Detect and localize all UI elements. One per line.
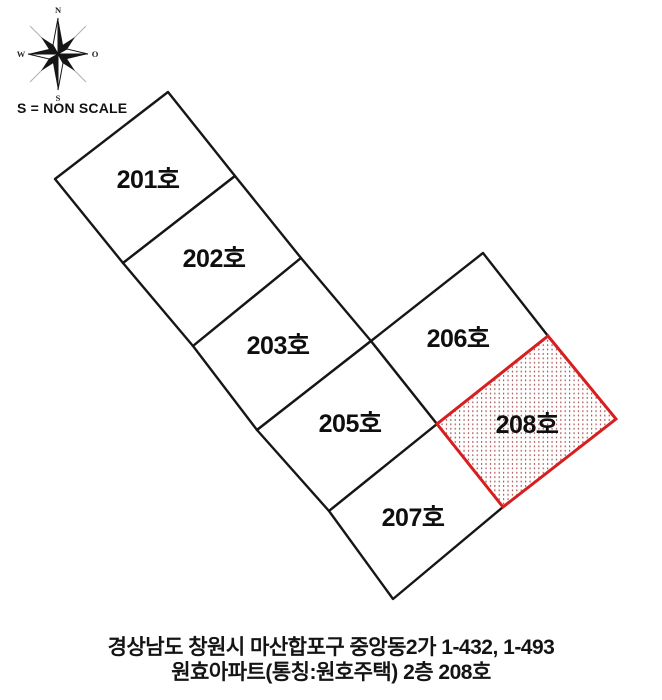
address-line-1: 경상남도 창원시 마산합포구 중앙동2가 1-432, 1-493	[0, 635, 662, 660]
compass-rose: N S W O	[0, 0, 116, 112]
address-footer: 경상남도 창원시 마산합포구 중앙동2가 1-432, 1-493 원효아파트(…	[0, 635, 662, 685]
compass-letter-north: N	[55, 5, 62, 15]
unit-label-206: 206호	[427, 319, 490, 355]
address-line-2: 원효아파트(통칭:원호주택) 2층 208호	[0, 660, 662, 685]
unit-label-203: 203호	[247, 326, 310, 362]
unit-label-202: 202호	[183, 239, 246, 275]
unit-label-207: 207호	[382, 498, 445, 534]
compass-letter-west: W	[17, 49, 26, 59]
compass-cardinal-points	[28, 18, 88, 90]
scale-note: S = NON SCALE	[17, 100, 127, 116]
unit-label-208: 208호	[496, 405, 559, 441]
unit-label-205: 205호	[319, 404, 382, 440]
floor-plan-page: N S W O S = NON SCALE 201호 202호 203호 205…	[0, 0, 662, 700]
compass-letter-east: O	[92, 49, 99, 59]
unit-label-201: 201호	[117, 160, 180, 196]
